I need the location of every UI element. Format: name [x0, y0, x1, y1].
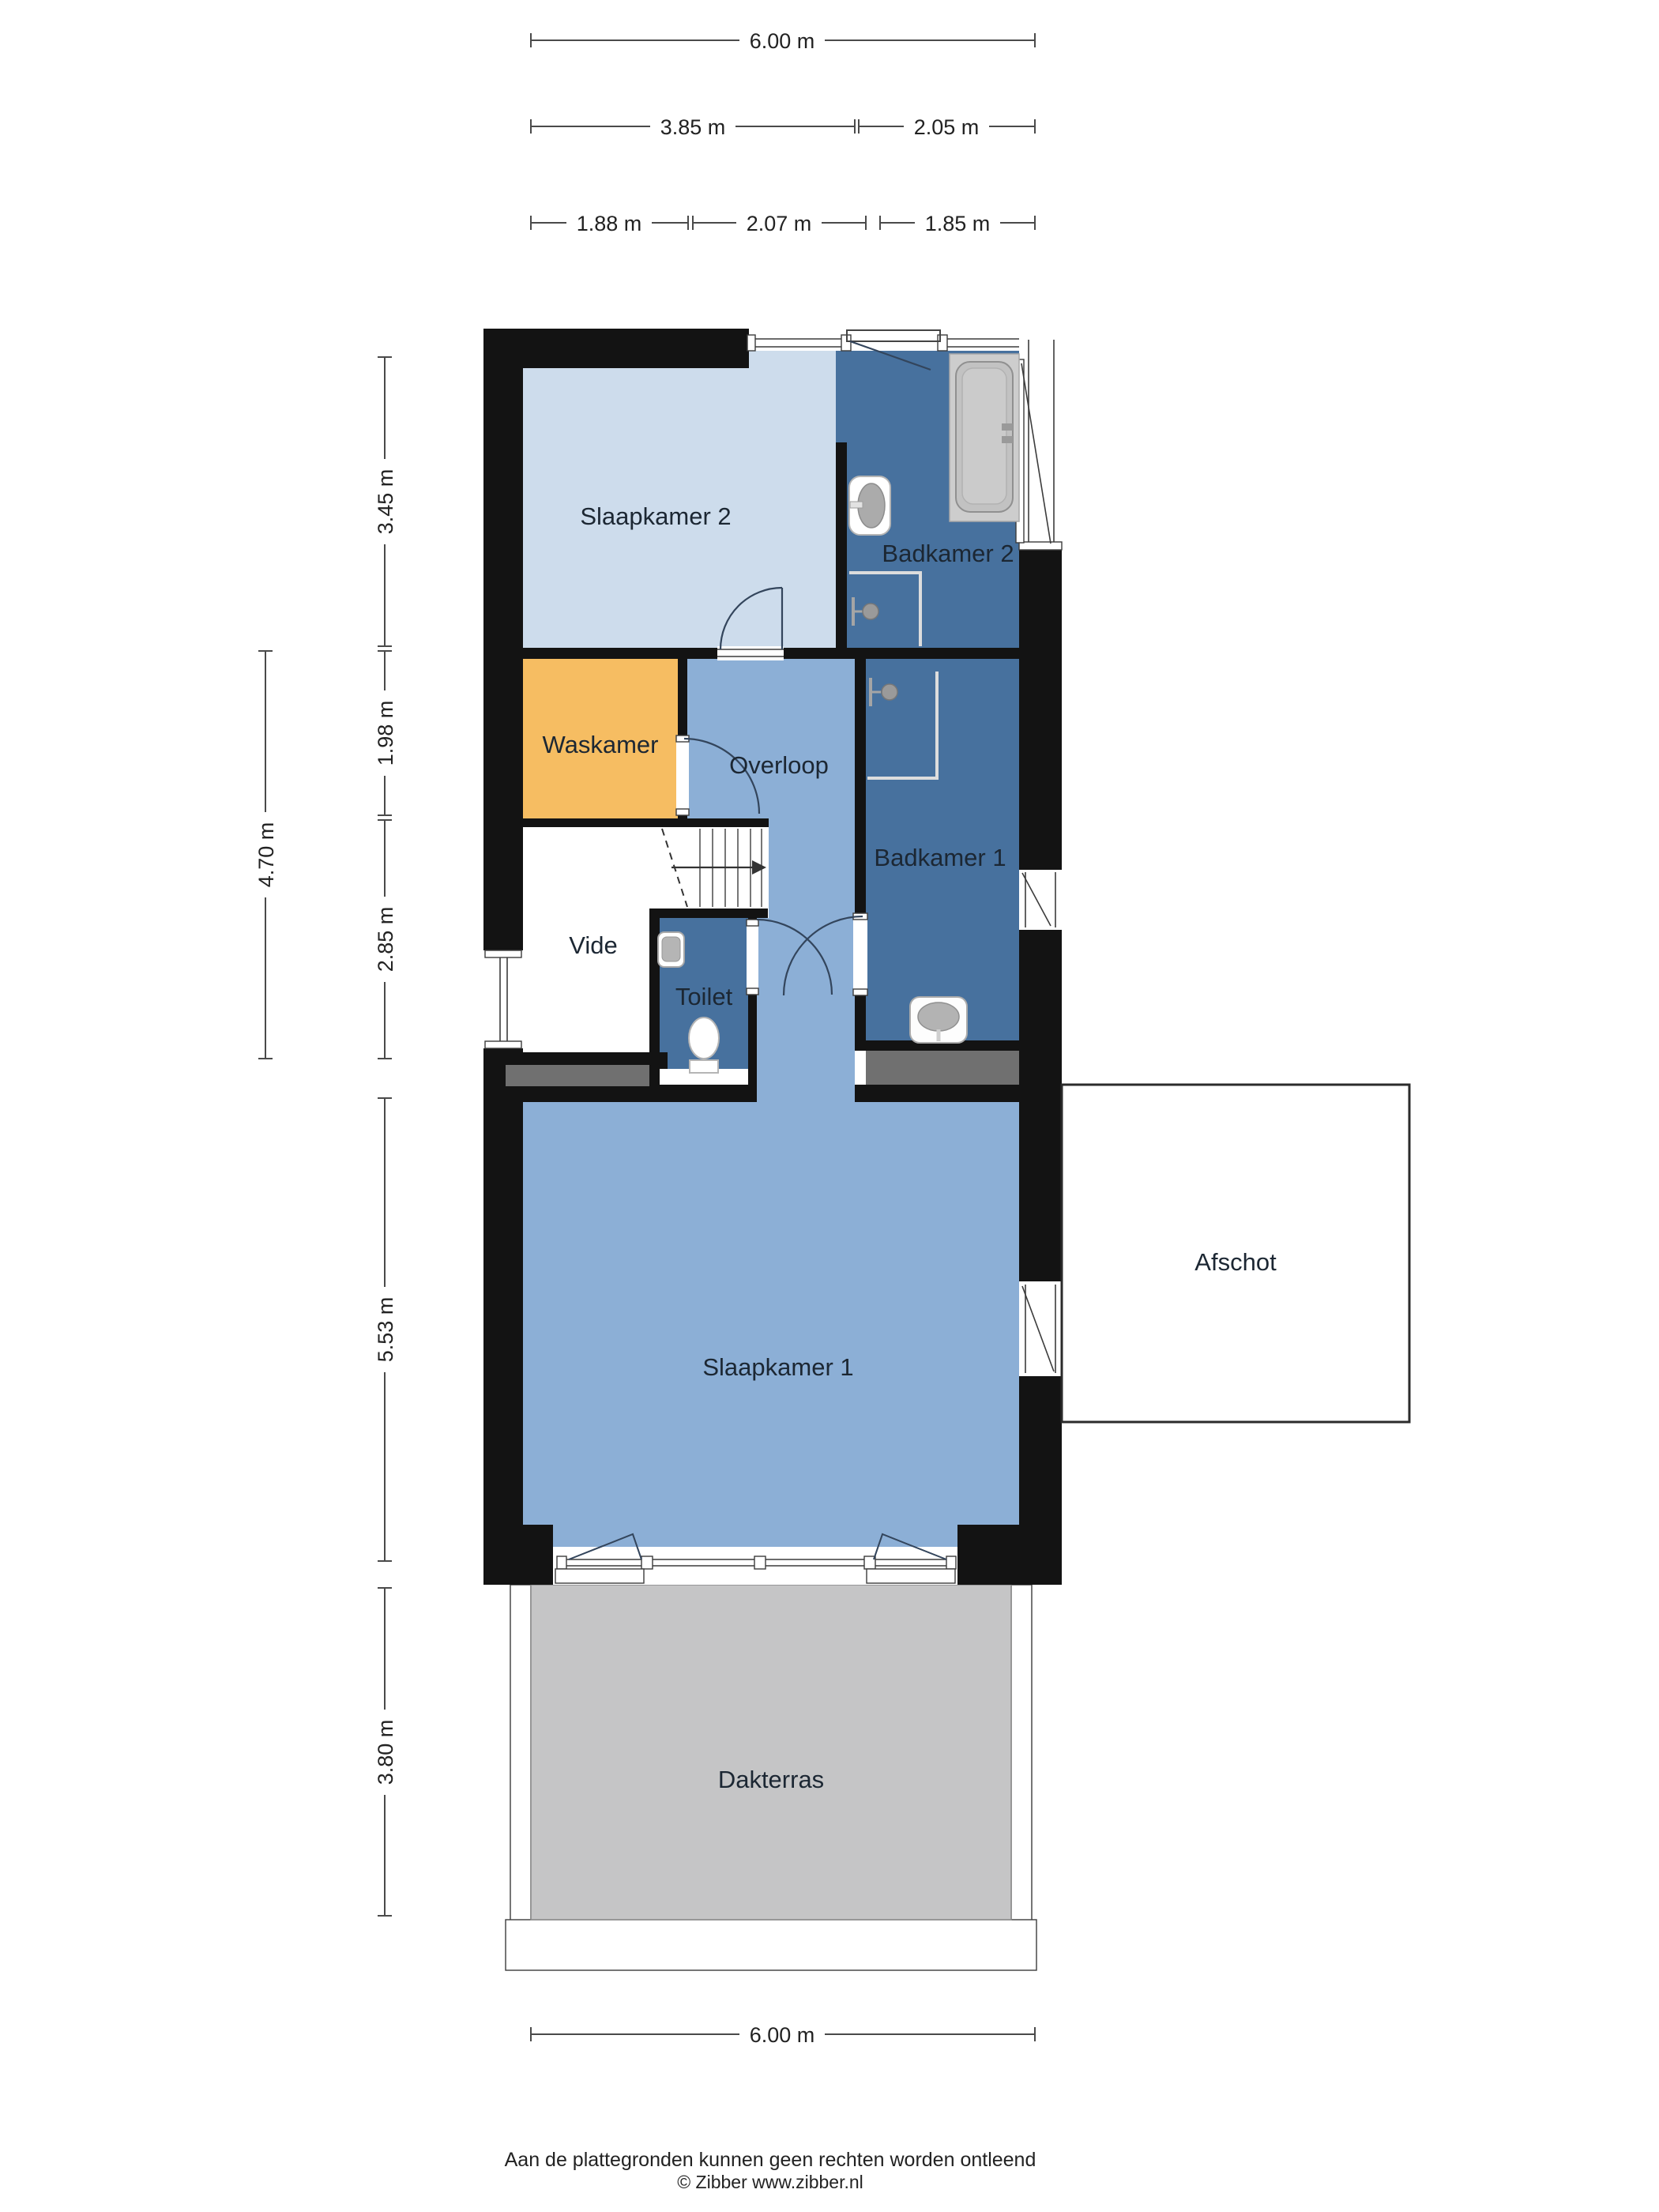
- label-slaapkamer1: Slaapkamer 1: [702, 1353, 853, 1381]
- room-slaapkamer1: [523, 1102, 1019, 1547]
- dim-label: 1.88 m: [577, 212, 642, 235]
- terrace-railing-bottom: [506, 1920, 1036, 1970]
- dim-bottom-600: 6.00 m: [531, 2023, 1035, 2047]
- door-gap-toilet: [747, 920, 758, 995]
- dim-label: 1.85 m: [925, 212, 991, 235]
- label-vide: Vide: [569, 931, 618, 959]
- dim-label: 5.53 m: [374, 1297, 397, 1363]
- wall-toilet-bottom-band: [649, 1085, 757, 1102]
- sink-icon-badkamer2: [849, 476, 890, 535]
- jamb: [754, 1556, 766, 1569]
- dim-label: 3.85 m: [660, 115, 726, 139]
- dim-left-380: 3.80 m: [374, 1588, 397, 1916]
- jamb: [747, 920, 758, 926]
- dim-label: 3.80 m: [374, 1720, 397, 1785]
- label-toilet: Toilet: [675, 983, 733, 1010]
- dim-top-207: 2.07 m: [693, 212, 866, 235]
- door-gap-badkamer1: [853, 913, 867, 995]
- dim-label: 6.00 m: [750, 29, 815, 53]
- window-badkamer2-right: [1019, 337, 1062, 550]
- sink-icon-toilet: [658, 932, 684, 967]
- dim-top-185: 1.85 m: [880, 212, 1035, 235]
- bathtub-icon: [950, 354, 1019, 521]
- jamb: [747, 335, 755, 351]
- dim-label: 2.05 m: [914, 115, 980, 139]
- dim-top-205: 2.05 m: [859, 115, 1035, 139]
- dim-label: 6.00 m: [750, 2023, 815, 2047]
- label-waskamer: Waskamer: [543, 731, 659, 758]
- window-vide-left: [483, 950, 523, 1048]
- room-overloop-corridor: [757, 918, 855, 1102]
- sink-icon-badkamer1: [910, 997, 967, 1043]
- terrace-railing-left: [510, 1585, 531, 1950]
- footer-copyright: © Zibber www.zibber.nl: [677, 2172, 863, 2192]
- wall-toilet-top: [649, 908, 768, 918]
- jamb: [557, 1556, 566, 1569]
- wall-badkamer1-band: [855, 1085, 1062, 1102]
- jamb: [747, 988, 758, 995]
- dim-label: 1.98 m: [374, 701, 397, 766]
- dim-left-198: 1.98 m: [374, 651, 397, 815]
- door-gap-badkamer2-top: [851, 335, 938, 351]
- dim-top-188: 1.88 m: [531, 212, 688, 235]
- dim-label: 2.07 m: [747, 212, 812, 235]
- dim-label: 3.45 m: [374, 469, 397, 535]
- room-overloop-mid: [769, 818, 855, 918]
- label-badkamer1: Badkamer 1: [874, 844, 1006, 871]
- dim-left-470: 4.70 m: [254, 651, 278, 1059]
- jamb: [853, 989, 867, 995]
- dim-label: 2.85 m: [374, 907, 397, 972]
- label-overloop: Overloop: [729, 751, 829, 779]
- footer-disclaimer: Aan de plattegronden kunnen geen rechten…: [505, 2149, 1036, 2171]
- wall-waskamer-bottom: [523, 818, 769, 827]
- dim-left-553: 5.53 m: [374, 1098, 397, 1561]
- jamb: [1019, 542, 1062, 550]
- sliding-panel-left: [555, 1569, 644, 1583]
- sliding-panel-right: [867, 1569, 955, 1583]
- terrace-floor: [531, 1585, 1011, 1920]
- dim-label: 4.70 m: [254, 822, 278, 888]
- floorplan-canvas: Slaapkamer 2 Badkamer 2 Waskamer Overloo…: [0, 0, 1659, 2212]
- room-overloop-upper: [687, 659, 855, 818]
- terrace-railing-right: [1011, 1585, 1032, 1950]
- stairs-icon: [662, 827, 768, 908]
- badkamer1-mat: [866, 1051, 1019, 1085]
- jamb: [485, 950, 521, 957]
- door-gap-slaapkamer2: [717, 646, 784, 660]
- jamb: [946, 1556, 956, 1569]
- label-slaapkamer2: Slaapkamer 2: [580, 502, 731, 530]
- dim-top-600: 6.00 m: [531, 29, 1035, 53]
- jamb: [676, 809, 689, 815]
- label-badkamer2: Badkamer 2: [882, 540, 1014, 567]
- toilet-icon: [689, 1018, 719, 1073]
- wall-s2-b2-divider: [836, 442, 847, 648]
- jamb: [485, 1041, 521, 1048]
- wall-top-block: [483, 329, 749, 368]
- dim-left-345: 3.45 m: [374, 357, 397, 646]
- wall-bottom-left-corner: [483, 1525, 553, 1585]
- dim-top-385: 3.85 m: [531, 115, 855, 139]
- label-afschot: Afschot: [1194, 1248, 1277, 1276]
- label-dakterras: Dakterras: [718, 1766, 824, 1793]
- door-gap-waskamer: [676, 735, 689, 815]
- room-slaapkamer2: [523, 351, 836, 649]
- dim-left-285: 2.85 m: [374, 820, 397, 1059]
- jamb: [938, 335, 947, 351]
- vide-mat-over: [506, 1065, 649, 1086]
- jamb: [641, 1556, 653, 1569]
